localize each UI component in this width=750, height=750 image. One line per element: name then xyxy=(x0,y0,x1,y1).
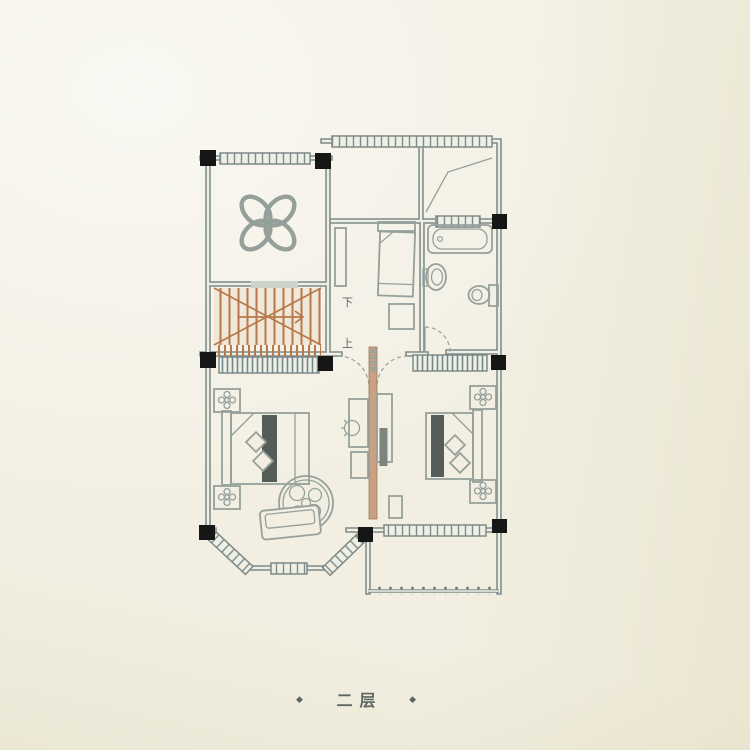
window xyxy=(332,136,492,147)
bathtub-icon xyxy=(428,225,492,253)
floor-plan-drawing: 下 上 xyxy=(0,0,750,750)
cabinet xyxy=(335,228,346,286)
bed-headboard xyxy=(222,411,231,485)
column xyxy=(200,352,216,368)
bay-window-right xyxy=(323,535,364,576)
column xyxy=(492,519,507,533)
column xyxy=(318,356,333,371)
lamp-icon xyxy=(475,483,492,500)
door-swing-arc xyxy=(338,356,369,387)
bay-window-center xyxy=(271,563,307,574)
bedroom-right xyxy=(426,386,496,503)
caption-text: 二层 xyxy=(329,687,382,711)
bay-window-left xyxy=(209,532,253,574)
cabinet xyxy=(389,496,402,518)
balcony-railing-dots xyxy=(371,586,497,595)
bed-icon xyxy=(378,231,415,296)
bed-icon xyxy=(231,413,309,484)
bedroom-top xyxy=(335,222,415,329)
quatrefoil-ornament-icon xyxy=(236,191,300,255)
bedroom-left xyxy=(214,389,333,540)
sofa-icon xyxy=(259,505,321,540)
column xyxy=(358,527,373,542)
bed-headboard xyxy=(473,410,482,482)
toilet-icon xyxy=(469,285,499,306)
column xyxy=(492,214,507,229)
desk-chair-icon xyxy=(341,420,360,436)
door-swing-arc xyxy=(377,356,408,387)
bathroom xyxy=(423,225,498,352)
washbasin-icon xyxy=(423,264,446,290)
bed-icon xyxy=(426,413,473,479)
wardrobe-strip xyxy=(413,355,487,371)
column xyxy=(200,150,216,166)
floor-caption: ◆ 二层 ◆ xyxy=(296,688,416,710)
column xyxy=(491,355,506,370)
window xyxy=(220,153,310,164)
bathroom-door xyxy=(425,327,450,352)
column xyxy=(315,153,331,169)
nightstand xyxy=(389,304,414,329)
caption-left-diamond-icon: ◆ xyxy=(296,688,303,710)
lamp-icon xyxy=(475,389,492,406)
stairs-up-label: 上 xyxy=(342,337,353,350)
lamp-icon xyxy=(219,392,236,409)
wardrobe-strip xyxy=(219,357,319,373)
desk-monitor xyxy=(380,428,388,466)
lamp-icon xyxy=(219,489,236,506)
stairs: 下 上 xyxy=(214,288,353,356)
column xyxy=(199,525,215,540)
stair-landing-band xyxy=(214,345,321,356)
roof-slope-line xyxy=(426,158,492,212)
window xyxy=(384,525,486,536)
cabinet xyxy=(351,452,368,478)
center-partition xyxy=(341,347,402,519)
doorway-threshold xyxy=(251,281,298,288)
caption-right-diamond-icon: ◆ xyxy=(409,688,416,710)
desk xyxy=(349,399,368,447)
stairs-down-label: 下 xyxy=(342,297,353,309)
floor-plan-page: 下 上 xyxy=(0,0,750,750)
